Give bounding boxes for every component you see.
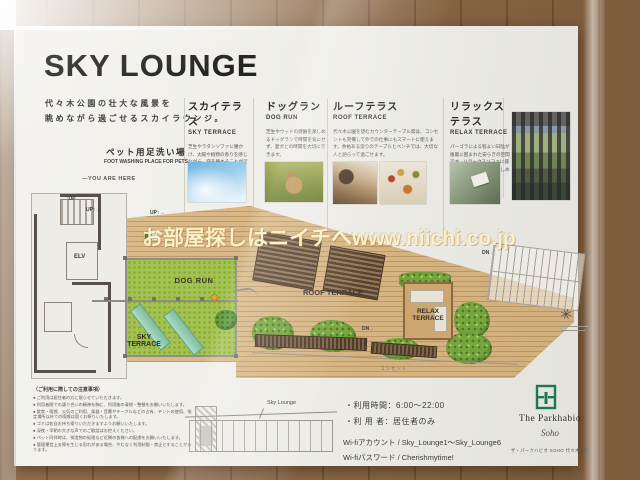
roof-terrace-title-jp: ルーフテラス — [333, 98, 439, 113]
section-dog-run: ドッグラン DOG RUN 芝生やウッドの感触を楽しめるドッグランで時間を気にせ… — [266, 98, 328, 158]
sky-terrace-title-jp: スカイテラス — [188, 98, 250, 128]
wall-shape — [108, 284, 111, 372]
foot-washing-label-en: FOOT WASHING PLACE FOR PETS — [78, 159, 214, 165]
roof-terrace-photo-2 — [380, 162, 426, 204]
relax-terrace-map-label-line1: RELAX — [417, 308, 439, 315]
fence-post — [234, 256, 238, 260]
column-divider — [443, 98, 444, 236]
note-line: ● ペット同伴時は、排泄物の処理など近隣の皆様への配慮をお願いいたします。 — [33, 435, 193, 440]
note-line: ● 飲食・喫煙、火気のご利用、楽器・音響やテーブルなどの占有、テントの使用、指定… — [33, 409, 193, 420]
door-arc — [74, 334, 88, 348]
note-line: ● ご利用は居住者の方に限らせていただきます。 — [33, 395, 193, 400]
dn-label: DN→ — [362, 326, 374, 332]
glass-glare — [0, 0, 640, 30]
dog-run-title-jp: ドッグラン — [266, 98, 328, 113]
roof-terrace-title-en: ROOF TERRACE — [333, 115, 439, 121]
relax-terrace-title-en: RELAX TERRACE — [450, 130, 514, 136]
brand-name: The Parkhabio — [506, 414, 594, 424]
roof-terrace-map-label: ROOF TERRACE — [297, 288, 369, 297]
relax-terrace-photo-people — [512, 112, 570, 200]
up-label: ↑UP — [66, 196, 75, 202]
dog-run-label: DOG RUN — [164, 276, 224, 285]
fence-post — [104, 297, 108, 301]
tagline-line-1: 代々木公園の壮大な風景を — [45, 98, 172, 109]
usage-users: ・利 用 者：居住者のみ — [345, 416, 435, 427]
fence-post — [123, 354, 127, 358]
sky-terrace-photo — [188, 162, 246, 202]
note-line: ● 深夜・早朝の大きな声でのご歓談はお控えください。 — [33, 428, 193, 433]
relax-terrace-map-label: RELAX TERRACE — [403, 308, 453, 322]
brand-emblem-icon — [534, 384, 558, 410]
section-roof-terrace: ルーフテラス ROOF TERRACE 代々木公園を望むカウンターテーブル席は、… — [333, 98, 439, 158]
note-line: ● 利用者間での譲り合いの精神を胸に、利用後の清掃・整頓をお願いいたします。 — [33, 402, 193, 407]
sofa-shape — [410, 290, 444, 303]
wall-shape — [72, 282, 111, 285]
up-label: UP↑→ — [86, 207, 100, 213]
foot-washing-label-jp: ペット用足洗い場 — [100, 146, 192, 158]
sky-terrace-map-label: SKY TERRACE — [118, 334, 170, 348]
outlet-label: コンセント — [380, 366, 408, 372]
note-line: ● ゴミは各自お持ち帰りいただきますようお願いいたします。 — [33, 421, 193, 426]
watermark-text: お部屋探しはニイチへwww.niichi.co.jp — [142, 222, 516, 252]
book-shape — [471, 172, 490, 187]
building-floor-plan: ELV — [32, 194, 126, 378]
roof-terrace-desc: 代々木公園を望むカウンターテーブル席は、コンセントも完備して外での仕事にもスマー… — [333, 128, 439, 158]
fence-post — [176, 297, 180, 301]
adjacent-corridor-plan — [487, 243, 585, 312]
fence-post — [200, 297, 204, 301]
elevator-label: ELV — [74, 254, 85, 260]
diagram-body — [189, 420, 333, 452]
sky-lounge-diagram-label: Sky Lounge — [267, 400, 296, 406]
building-section-diagram: Sky Lounge — [185, 402, 337, 460]
elevator-room — [66, 242, 98, 280]
relax-terrace-map-label-line2: TERRACE — [412, 315, 443, 322]
dog-run-desc: 芝生やウッドの感触を楽しめるドッグランで時間を気にせず、愛犬との時間を大切にでき… — [266, 128, 328, 158]
page-title: SKY LOUNGE — [44, 48, 258, 84]
wall-shape — [34, 370, 96, 373]
dog-run-photo — [265, 162, 323, 202]
fence-post — [234, 354, 238, 358]
fence-post — [128, 297, 132, 301]
sky-terrace-map-label-line1: SKY — [137, 334, 151, 341]
wifi-account: Wi-fiアカウント / Sky_Lounge1～Sky_Lounge6 — [343, 437, 501, 448]
dog-run-title-en: DOG RUN — [266, 115, 328, 121]
glass-glare — [583, 0, 605, 480]
note-line: ● 管理運営上支障を生じる恐れがある場合、やむなく利用制限・禁止とすることがあり… — [33, 442, 193, 453]
fence-post — [152, 297, 156, 301]
relax-terrace-title-jp: リラックステラス — [450, 98, 514, 128]
relax-terrace-photo-book — [450, 162, 500, 204]
brand-script: Soho — [506, 428, 594, 438]
up-label: UP↑→ — [150, 210, 164, 216]
usage-hours: ・利用時間：6:00～22:00 — [345, 400, 445, 411]
glass-glare — [0, 0, 16, 480]
notes-heading: （ご利用に際しての注意事項） — [33, 386, 103, 393]
plan-line — [491, 271, 580, 283]
compass-caption-line — [561, 330, 585, 331]
room-shape — [44, 302, 72, 332]
gate-marker — [211, 294, 218, 301]
wall-shape — [98, 194, 101, 250]
wall-shape — [34, 214, 37, 372]
roof-terrace-photo-1 — [333, 162, 377, 204]
fence-post — [123, 256, 127, 260]
sky-terrace-map-label-line2: TERRACE — [127, 341, 161, 348]
wifi-password: Wi-fiパスワード / Cherishmytime! — [343, 452, 454, 463]
signboard-photo: SKY LOUNGE 代々木公園の壮大な風景を 眺めながら過ごせるスカイラウンジ… — [0, 0, 640, 480]
you-are-here-label: —YOU ARE HERE — [82, 176, 136, 182]
sky-terrace-title-en: SKY TERRACE — [188, 130, 250, 136]
